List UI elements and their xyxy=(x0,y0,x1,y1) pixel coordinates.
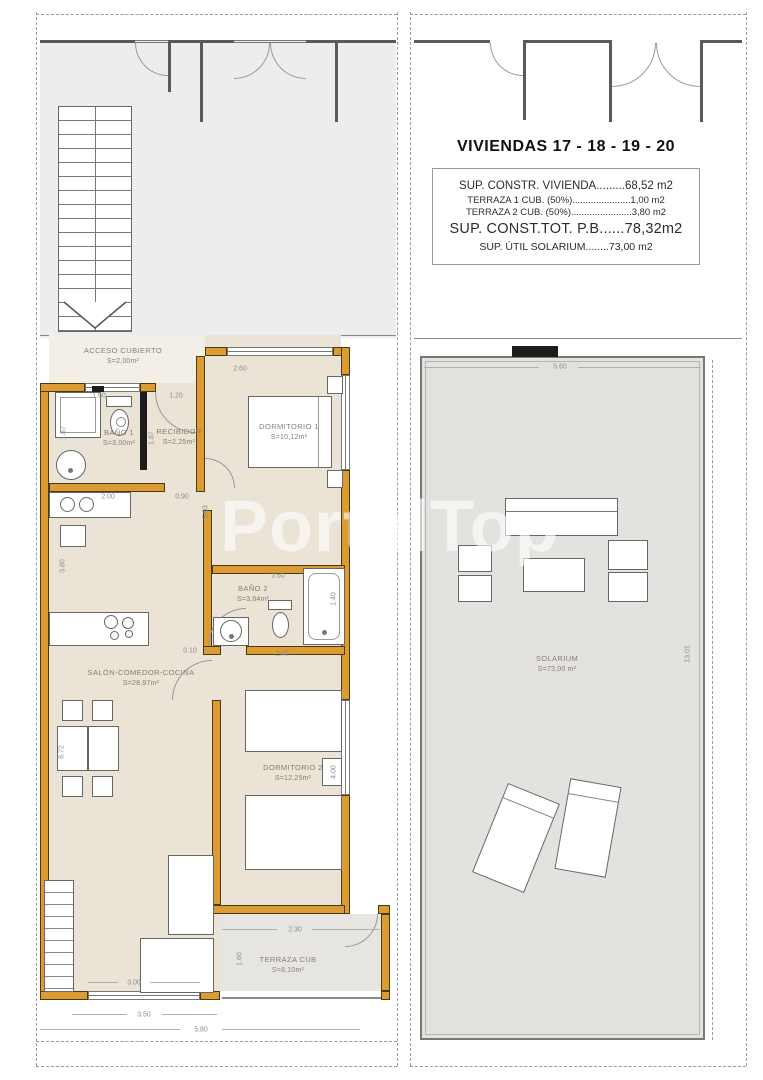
dimension-label: 5.80 xyxy=(194,1027,208,1034)
dimension-label: 2.30 xyxy=(288,927,302,934)
toilet xyxy=(272,612,289,638)
dim-line xyxy=(162,1014,217,1015)
room-label-acceso: ACCESO CUBIERTO S=2,00m² xyxy=(84,345,162,367)
dimension-label: 5.03 xyxy=(203,505,210,519)
solarium-deck xyxy=(420,356,705,1040)
chair xyxy=(92,700,113,721)
hob-burner xyxy=(104,615,118,629)
terrace-wall-right xyxy=(381,914,390,991)
spec-line: SUP. CONST.TOT. P.B......78,32m2 xyxy=(450,220,683,240)
washbasin xyxy=(220,620,242,642)
nightstand xyxy=(327,470,343,488)
dimension-label: 2.00 xyxy=(101,494,115,501)
dimension-label: 1.40 xyxy=(331,592,338,606)
dim-line xyxy=(72,1014,127,1015)
fridge xyxy=(60,525,86,547)
plot-boundary-top xyxy=(410,14,746,15)
window xyxy=(227,347,333,356)
dim-line xyxy=(88,982,118,983)
outdoor-sofa xyxy=(505,498,618,536)
spec-line: TERRAZA 1 CUB. (50%)....................… xyxy=(467,195,664,208)
facade-wall xyxy=(40,383,85,392)
wall-stub xyxy=(700,40,703,122)
exterior-wall-right xyxy=(341,347,350,375)
bathtub xyxy=(303,568,345,645)
kitchen-counter-hob xyxy=(49,612,149,646)
room-label-bano2: BAÑO 2 S=3,64m² xyxy=(237,583,269,605)
hob-burner xyxy=(125,630,133,638)
outdoor-chair xyxy=(608,540,648,570)
street-wall xyxy=(40,40,135,43)
dimension-label: 3.50 xyxy=(137,1012,151,1019)
dim-line xyxy=(424,367,539,368)
wall-stub xyxy=(200,40,203,122)
dimension-label: 0.10 xyxy=(183,648,197,655)
building-edge xyxy=(414,338,742,339)
cistern xyxy=(92,386,104,392)
dimension-label: 3.00 xyxy=(127,980,141,987)
dimension-label: 1.87 xyxy=(149,431,156,445)
kitchen-sink xyxy=(79,497,94,512)
street-wall xyxy=(523,40,609,43)
dimension-label: 13.01 xyxy=(685,645,692,663)
spec-line: TERRAZA 2 CUB. (50%)....................… xyxy=(466,207,666,220)
dim-line xyxy=(312,929,380,930)
street-wall xyxy=(306,40,396,43)
window xyxy=(341,700,350,795)
chair xyxy=(62,700,83,721)
bedroom2-terrace-wall xyxy=(212,905,345,914)
terrace-wall-corner xyxy=(381,991,390,1000)
room-label-dormitorio2: DORMITORIO 2 S=12,25m² xyxy=(263,762,323,784)
plot-boundary-right xyxy=(746,12,747,1066)
dim-line xyxy=(150,982,200,983)
boundary-inner xyxy=(712,360,713,1040)
kitchen-sink xyxy=(60,497,75,512)
room-label-recibidor: RECIBIDOR S=2,25m² xyxy=(156,426,201,448)
outdoor-chair xyxy=(458,575,492,602)
dimension-label: 1.60 xyxy=(237,952,244,966)
sofa xyxy=(140,938,214,993)
sheet-edge-bottom xyxy=(410,1066,746,1067)
bed xyxy=(245,795,342,870)
wall-stub xyxy=(335,40,338,122)
facade-wall xyxy=(140,383,156,392)
dim-line xyxy=(578,367,701,368)
wall-stub xyxy=(523,40,526,120)
spec-box: SUP. CONSTR. VIVIENDA.........68,52 m2 T… xyxy=(432,168,700,265)
dim-line xyxy=(222,929,277,930)
spec-line: SUP. CONSTR. VIVIENDA.........68,52 m2 xyxy=(459,179,673,195)
dimension-label: 2.60 xyxy=(271,573,285,580)
rear-wall xyxy=(40,991,88,1000)
plot-boundary-bottom xyxy=(36,1041,397,1042)
stairs-direction-arrow xyxy=(58,300,132,332)
outdoor-chair xyxy=(608,572,648,602)
dimension-label: 3.80 xyxy=(60,559,67,573)
sheet-edge-bottom xyxy=(36,1066,397,1067)
dimension-label: 2.40 xyxy=(275,651,289,658)
bed xyxy=(245,690,342,752)
plot-boundary-top xyxy=(36,14,397,15)
room-label-dormitorio1: DORMITORIO 1 S=10,12m² xyxy=(259,421,319,443)
room-label-salon: SALÓN-COMEDOR-COCINA S=28,97m² xyxy=(88,667,195,689)
room-label-terraza: TERRAZA CUB S=8,10m² xyxy=(260,954,317,976)
washbasin xyxy=(56,450,86,480)
door-swing-arc xyxy=(612,43,656,87)
nightstand xyxy=(327,376,343,394)
dimension-label: 4.00 xyxy=(331,765,338,779)
bedroom1-facade xyxy=(205,347,227,356)
toilet-tank xyxy=(106,396,132,407)
hall-bedroom1-wall xyxy=(196,356,205,492)
door-swing-arc xyxy=(656,43,700,87)
street-wall xyxy=(700,40,742,43)
street-wall xyxy=(414,40,490,43)
chair xyxy=(92,776,113,797)
dimension-label: 8.72 xyxy=(59,745,66,759)
hob-burner xyxy=(110,631,119,640)
sheet-title: VIVIENDAS 17 - 18 - 19 - 20 xyxy=(420,138,712,156)
wall-stub xyxy=(168,40,171,92)
coffee-table xyxy=(523,558,585,592)
sofa-side xyxy=(44,880,74,992)
plot-boundary-left xyxy=(36,12,37,1066)
plot-boundary-right xyxy=(397,12,398,1066)
terrace-open-edge xyxy=(222,997,381,999)
dimension-label: 0.90 xyxy=(175,494,189,501)
kitchen-wall xyxy=(49,483,165,492)
dimension-label: 2.60 xyxy=(233,366,247,373)
dim-line xyxy=(40,1029,180,1030)
outdoor-chair xyxy=(458,545,492,572)
solarium-parapet xyxy=(425,361,700,1035)
sofa xyxy=(168,855,214,935)
spec-line: SUP. ÚTIL SOLARIUM........73,00 m2 xyxy=(479,240,652,254)
dim-line xyxy=(222,1029,360,1030)
stairs xyxy=(58,106,132,332)
dining-table xyxy=(88,726,119,771)
room-label-bano1: BAÑO 1 S=3,00m² xyxy=(103,427,135,449)
room-label-solarium: SOLARIUM S=73,00 m² xyxy=(536,653,578,675)
dimension-label: 1.60 xyxy=(92,393,106,400)
dimension-label: 1.20 xyxy=(169,393,183,400)
dimension-label: 1.87 xyxy=(61,426,68,440)
wardrobe-wall xyxy=(140,392,147,470)
bathroom2-wall-bottom xyxy=(246,646,345,655)
exterior-wall-right xyxy=(341,795,350,914)
bathroom2-wall-bottom xyxy=(203,646,221,655)
dimension-label: 5.60 xyxy=(550,364,570,371)
hob-burner xyxy=(122,617,134,629)
chair xyxy=(62,776,83,797)
floorplan-sheet: ACCESO CUBIERTO S=2,00m² BAÑO 1 S=3,00m²… xyxy=(0,0,763,1080)
bedroom2-terrace-wall xyxy=(378,905,390,914)
door-swing-arc xyxy=(490,43,523,76)
plot-boundary-left xyxy=(410,12,411,1066)
toilet-tank xyxy=(268,600,292,610)
stair-bulkhead xyxy=(512,346,558,357)
